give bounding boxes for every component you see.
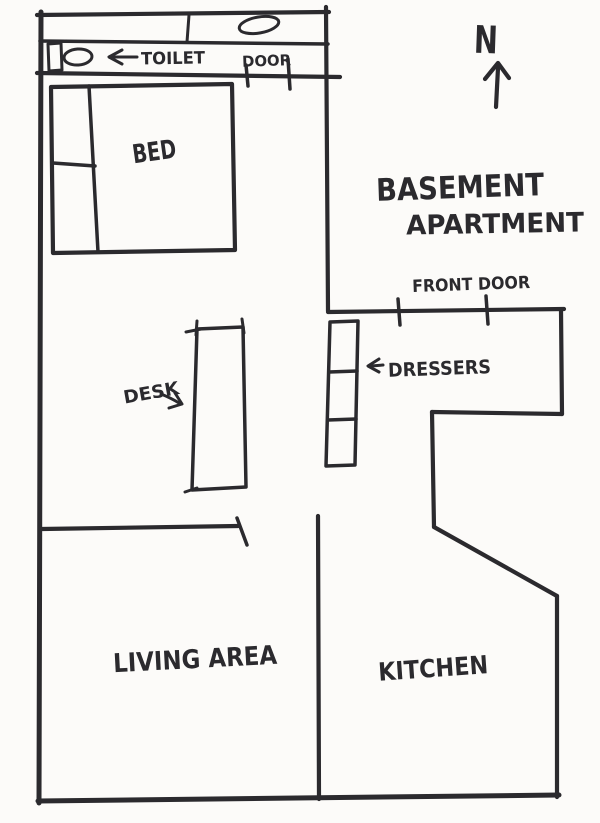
bed-label: BED [131, 134, 179, 170]
desk-label: DESK [122, 378, 182, 409]
desk-overshoot-top [186, 329, 201, 332]
wall-bottom [38, 795, 559, 801]
title-line-2: APARTMENT [406, 207, 585, 241]
compass-north-label: N [473, 18, 499, 63]
wall-notch-left [432, 412, 434, 527]
wall-left [39, 12, 41, 803]
outer-walls [37, 7, 564, 803]
bed-inner-horizontal [53, 163, 95, 166]
bed-inner-vertical [89, 86, 98, 252]
wall-notch-top [432, 412, 562, 414]
living-area-label: LIVING AREA [112, 641, 277, 680]
bathroom-bottom-wall [37, 73, 340, 77]
north-arrow-shaft [496, 68, 498, 107]
kitchen-label: KITCHEN [377, 650, 489, 687]
wall-right-mid [561, 310, 562, 414]
toilet-tank [48, 43, 62, 71]
dressers-arrow-shaft [371, 365, 383, 366]
bathroom-divider [187, 15, 189, 42]
title-line-1: BASEMENT [376, 167, 545, 209]
interior-walls [37, 15, 340, 799]
front-door-label: FRONT DOOR [412, 273, 531, 297]
north-arrow-icon [485, 63, 509, 107]
toilet-fixture [48, 43, 93, 71]
toilet-arrow-icon [109, 50, 137, 64]
wall-right-upper [326, 7, 328, 311]
desk-tick-topleft [196, 321, 197, 335]
bathroom-counter-line [40, 41, 328, 44]
floor-plan-canvas: N TOILET DOOR BED BASEMENT APARTMENT FRO… [0, 0, 600, 823]
floor-plan-sketch: N TOILET DOOR BED BASEMENT APARTMENT FRO… [0, 0, 600, 823]
dressers [326, 321, 358, 466]
dressers-divider-1 [329, 371, 357, 372]
dressers-label: DRESSERS [388, 356, 492, 382]
sink-icon [238, 14, 280, 37]
bathroom-door-label: DOOR [242, 51, 292, 71]
wall-top [37, 12, 329, 15]
dressers-divider-2 [328, 419, 356, 420]
toilet-label: TOILET [141, 48, 206, 69]
front-door-tick-left [398, 299, 400, 325]
dressers-arrow-icon [368, 359, 383, 372]
kitchen-living-wall [318, 516, 319, 799]
wall-front-door [328, 309, 564, 312]
desk [185, 319, 246, 492]
desk-tick-topright [242, 319, 244, 333]
desk-outline [192, 327, 246, 490]
dressers-outline [326, 321, 358, 466]
wall-diagonal [434, 527, 557, 596]
front-door-tick-right [486, 296, 488, 324]
living-area-wall [42, 526, 238, 529]
toilet-bowl [63, 48, 92, 66]
living-doorjamb-tick [237, 518, 247, 545]
